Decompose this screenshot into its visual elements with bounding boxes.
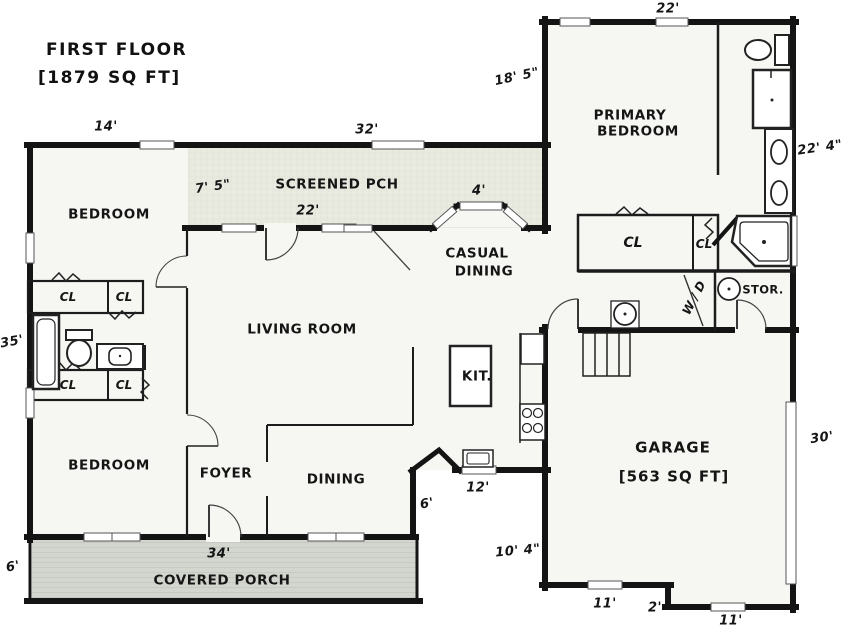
toilet-bowl [745,40,771,60]
closet-label-1: CL [60,291,76,303]
room-bedroom-bottom: BEDROOM [68,459,150,473]
plan-area: [1879 SQ FT] [38,68,181,88]
dim-garage-step: 2' [648,602,662,615]
window-living-1 [222,224,256,232]
toilet-tank [775,35,789,65]
window-garage-left [588,581,622,589]
room-storage: STOR. [742,284,783,296]
window-bay [460,202,502,210]
closet-label-2: CL [116,291,132,303]
room-casual-line2: DINING [455,265,514,279]
toilet-tank-2 [66,330,92,340]
room-covered-porch: COVERED PORCH [154,574,291,588]
garage-entry-opening [548,325,578,335]
room-primary-line1: PRIMARY [594,109,667,123]
porch-door-opening [264,223,296,233]
dim-garage-left-lower: 10' 4" [495,543,541,560]
floor-plan: FIRST FLOOR [1879 SQ FT] 14' 32' 22' 18'… [0,0,843,632]
dim-bay-window: 4' [472,185,486,198]
room-living: LIVING ROOM [247,323,357,337]
floor-plan-canvas [0,0,843,632]
window-primary-1 [560,18,590,26]
room-garage: GARAGE [635,441,711,456]
sink-2 [771,181,787,205]
dim-kitchen-window: 12' [466,482,490,495]
window-left-upper [26,233,34,263]
garage-door [786,402,796,584]
window-bedroom-top [140,141,174,149]
window-left-lower [26,388,34,418]
dim-screened-porch-inner: 22' [296,205,320,218]
porch-door-panel [344,225,372,232]
toilet-bowl-2 [67,340,91,366]
dim-garage-right-wall: 30' [809,430,834,446]
dim-garage-bottom-right: 11' [719,615,743,628]
plan-title: FIRST FLOOR [46,40,187,60]
room-garage-area: [563 SQ FT] [619,470,730,485]
dim-dining-corner: 6' [419,496,435,511]
dim-covered-porch-depth: 6' [5,559,21,574]
bath-door-opening [713,175,723,213]
room-screened-porch: SCREENED PCH [275,178,398,192]
refrigerator [521,334,544,364]
room-bedroom-top: BEDROOM [68,208,150,222]
dim-garage-bottom-left: 11' [593,598,617,611]
shower-drain [771,99,774,102]
window-garage-right [711,603,745,611]
room-primary-line2: BEDROOM [597,125,679,139]
dim-primary-width: 22' [656,3,680,16]
dim-screened-porch-width: 32' [355,124,379,137]
room-casual-line1: CASUAL [445,247,508,261]
closet-label-primary-small: CL [696,238,712,250]
room-kitchen: KIT. [462,370,492,384]
dim-left-wall-height: 35' [0,334,25,351]
dim-covered-porch-width: 34' [207,548,231,561]
window-primary-2 [656,18,688,26]
window-porch-top [372,141,424,149]
storage-door-opening [735,325,765,335]
front-door-opening [206,531,240,542]
closet-label-3: CL [60,379,76,391]
sink-1 [771,140,787,164]
closet-label-4: CL [116,379,132,391]
closet-label-primary: CL [623,236,642,250]
room-foyer: FOYER [200,467,253,481]
room-dining: DINING [307,473,366,487]
dim-bedroom-width: 14' [94,121,118,134]
